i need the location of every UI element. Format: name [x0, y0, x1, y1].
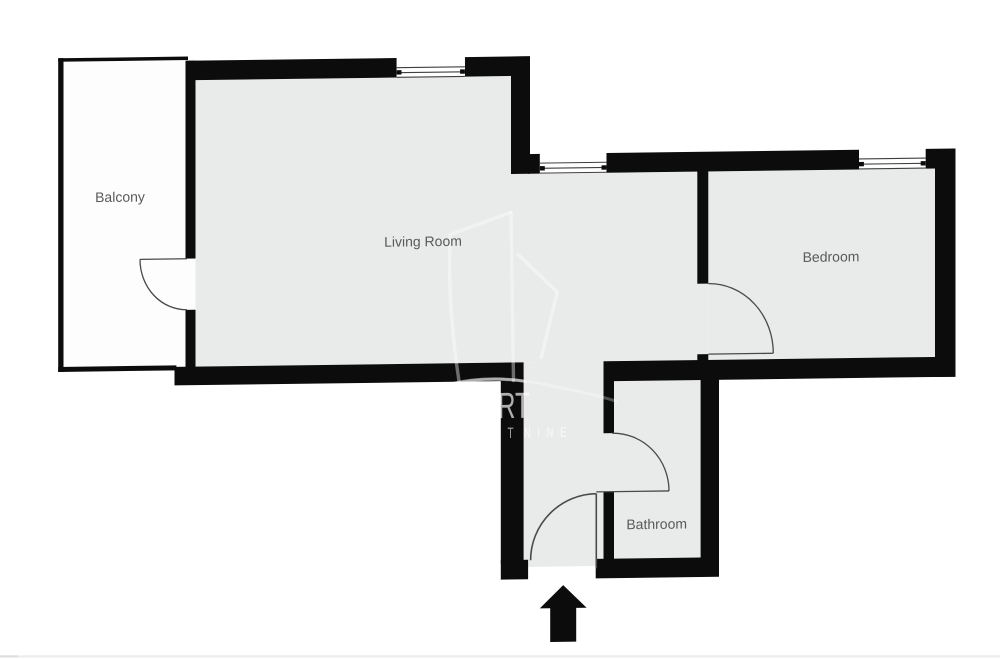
svg-text:Living Room: Living Room	[384, 233, 462, 250]
svg-text:Bathroom: Bathroom	[626, 516, 687, 533]
svg-text:NINE: NINE	[524, 424, 573, 441]
svg-text:T: T	[507, 425, 513, 442]
svg-text:Balcony: Balcony	[95, 189, 145, 206]
svg-text:Bedroom: Bedroom	[803, 248, 860, 265]
svg-text:T: T	[515, 385, 530, 427]
svg-text:R: R	[498, 385, 515, 427]
